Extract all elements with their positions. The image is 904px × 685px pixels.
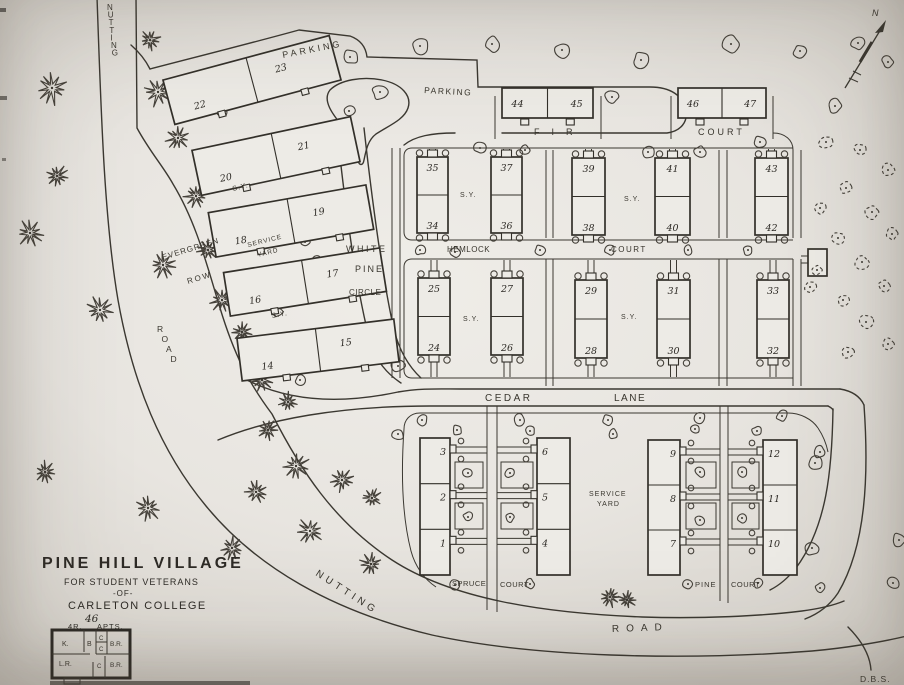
bush <box>749 458 755 464</box>
building-number: 6 <box>542 447 548 458</box>
bush <box>458 484 464 490</box>
conifer-icon <box>330 470 354 493</box>
bush <box>523 548 529 554</box>
room-bedroom: B.R. <box>110 662 123 669</box>
building-number: 33 <box>767 286 779 297</box>
sy-label: S.Y. <box>271 310 288 320</box>
bush <box>757 273 763 279</box>
building: 4342 <box>755 149 788 243</box>
building-number: 30 <box>667 346 679 357</box>
street-label-nutting-top: NUTTING <box>107 3 118 58</box>
street-label-nutting-bottom: NUTTING <box>313 568 380 617</box>
building-number: 18 <box>234 235 248 248</box>
bush <box>575 360 581 366</box>
building: 321 <box>420 438 487 575</box>
bush <box>418 271 424 277</box>
building-number: 12 <box>768 449 780 460</box>
room-bedroom: B.R. <box>110 641 123 648</box>
building-number: 16 <box>248 294 262 307</box>
utility-building <box>808 249 827 276</box>
building-number: 46 <box>686 99 699 110</box>
bush <box>657 360 663 366</box>
bush <box>572 151 578 157</box>
conifer-icon <box>601 588 621 608</box>
bush <box>418 357 424 363</box>
signature: D.B.S. <box>860 674 891 684</box>
bush <box>601 360 607 366</box>
bush <box>755 151 761 157</box>
svg-text:YARD: YARD <box>597 501 620 508</box>
svg-text:-OF-: -OF- <box>113 589 133 598</box>
building-number: 2 <box>439 493 446 504</box>
building-number: 10 <box>768 539 780 550</box>
bush <box>523 530 529 536</box>
building-number: 3 <box>440 447 446 458</box>
bush <box>749 440 755 446</box>
bush <box>682 151 688 157</box>
room-living: L.R. <box>59 661 72 668</box>
conifer-icon <box>142 31 161 51</box>
building-number: 7 <box>670 539 677 550</box>
building-number: 44 <box>510 99 523 110</box>
building: 987 <box>648 440 720 575</box>
building-number: 35 <box>426 163 438 174</box>
bush <box>688 503 694 509</box>
title-block: PINE HILL VILLAGE FOR STUDENT VETERANS -… <box>42 555 244 612</box>
sy-label: S.Y. <box>624 196 640 203</box>
parking-label-ne: PARKING <box>424 85 473 98</box>
building-number: 8 <box>670 494 676 505</box>
bush <box>490 150 496 156</box>
conifer-icon <box>278 391 297 410</box>
service-yard-label-south: SERVICE <box>589 491 627 498</box>
building-number: 9 <box>670 449 676 460</box>
building-number: 34 <box>426 221 438 232</box>
svg-text:CIRCLE: CIRCLE <box>349 288 381 297</box>
north-arrow: N <box>845 8 886 88</box>
tree-icon <box>838 296 849 306</box>
bush <box>749 530 755 536</box>
building-number: 26 <box>500 343 513 354</box>
bush <box>458 530 464 536</box>
building: 1415 <box>237 319 400 386</box>
bush <box>781 151 787 157</box>
room-closet: C <box>97 664 102 670</box>
building: 3736 <box>490 149 522 241</box>
college-name: CARLETON COLLEGE <box>68 600 207 612</box>
bush <box>523 438 529 444</box>
building-number: 15 <box>339 337 352 349</box>
conifer-icon <box>19 220 44 247</box>
svg-text:ROW: ROW <box>186 270 213 286</box>
bush <box>458 438 464 444</box>
bush <box>523 484 529 490</box>
bush <box>656 151 662 157</box>
building: 3938 <box>572 149 605 243</box>
room-kitchen: K. <box>62 641 69 648</box>
sy-label: S.Y. <box>460 192 476 199</box>
building-number: 47 <box>743 99 757 110</box>
bush <box>688 548 694 554</box>
building-number: 43 <box>764 164 777 175</box>
building-number: 1 <box>440 538 446 549</box>
building-number: 42 <box>764 223 777 234</box>
east-road-outer-edge <box>805 405 866 619</box>
bush <box>442 150 448 156</box>
conifer-icon <box>359 552 381 574</box>
building: 3534 <box>416 149 448 241</box>
room-bath: B <box>87 641 92 648</box>
map-title: PINE HILL VILLAGE <box>42 555 244 572</box>
svg-text:COURT: COURT <box>500 580 529 589</box>
building-number: 40 <box>665 223 678 234</box>
bush <box>458 456 464 462</box>
building-number: 19 <box>312 206 326 219</box>
bush <box>749 503 755 509</box>
sy-label: S.Y. <box>463 316 479 323</box>
building: 3332 <box>757 260 789 377</box>
building-number: 41 <box>665 164 678 175</box>
conifer-icon <box>165 126 189 148</box>
building-number: 32 <box>767 346 779 357</box>
building-number: 25 <box>427 284 440 295</box>
building: 121110 <box>728 440 797 575</box>
building-number: 27 <box>500 284 514 295</box>
bush <box>575 273 581 279</box>
svg-text:COURT: COURT <box>698 127 745 137</box>
building-number: 36 <box>500 221 512 232</box>
fir-court-label: FIR <box>534 127 585 137</box>
building: 2021 <box>192 117 361 201</box>
building: 3130 <box>657 260 690 377</box>
building-number: 45 <box>570 99 583 110</box>
bush <box>601 273 607 279</box>
bush <box>598 151 604 157</box>
bush <box>683 273 689 279</box>
building-number: 24 <box>427 343 440 354</box>
building-number: 29 <box>584 286 597 297</box>
room-closet: C <box>99 647 104 653</box>
pine-court-label: PINE <box>695 580 717 589</box>
bush <box>688 530 694 536</box>
bush <box>749 548 755 554</box>
bush <box>517 357 523 363</box>
site-plan: 2223202118191617141544454647353437363938… <box>0 0 904 685</box>
building-number: 14 <box>261 360 274 372</box>
tree-icon <box>555 44 570 58</box>
bush <box>688 440 694 446</box>
white-pine-circle-label: WHITE <box>346 244 388 254</box>
bush <box>491 271 497 277</box>
spruce-court-label: SPRUCE <box>452 579 486 588</box>
room-closet: C <box>99 636 104 642</box>
bush <box>444 271 450 277</box>
site-plan-photo: 2223202118191617141544454647353437363938… <box>0 0 904 685</box>
bush <box>688 458 694 464</box>
building-number: 28 <box>584 346 597 357</box>
building-number: 5 <box>542 493 548 504</box>
bush <box>783 360 789 366</box>
hemlock-court-label: HEMLOCK <box>447 245 490 254</box>
svg-text:COURT: COURT <box>731 580 760 589</box>
cedar-lane-south-edge <box>218 406 828 440</box>
building: 4445 <box>502 88 593 125</box>
svg-text:PINE: PINE <box>355 264 384 274</box>
building-number: 11 <box>768 494 780 505</box>
street-label-road-bottom: ROAD <box>612 622 669 635</box>
map-subtitle: FOR STUDENT VETERANS <box>64 577 199 587</box>
building: 2524 <box>418 260 450 377</box>
cedar-lane-north-edge <box>243 378 840 399</box>
sy-label: S.Y. <box>621 314 637 321</box>
building: 2928 <box>575 260 607 377</box>
building-number: 31 <box>667 286 679 297</box>
bush <box>416 150 422 156</box>
building: 4140 <box>655 149 690 243</box>
bush <box>491 357 497 363</box>
building-number: 38 <box>582 223 594 234</box>
bush <box>757 360 763 366</box>
bush <box>683 360 689 366</box>
building-number: 37 <box>500 163 513 174</box>
bush <box>517 271 523 277</box>
svg-text:LANE: LANE <box>614 393 646 404</box>
bush <box>458 548 464 554</box>
cedar-lane-label: CEDAR <box>485 393 533 404</box>
bush <box>444 357 450 363</box>
building: 2726 <box>491 260 523 377</box>
bush <box>783 273 789 279</box>
street-label-road-left: ROAD <box>157 324 177 364</box>
building-number: 4 <box>541 538 548 549</box>
svg-text:COURT: COURT <box>611 245 647 254</box>
building-number: 39 <box>582 164 594 175</box>
legend-floor-plan: 46 4R. APTS. K. B C C B.R. L.R. C B.R. <box>52 613 130 684</box>
bush <box>657 273 663 279</box>
bush <box>523 456 529 462</box>
building: 4647 <box>678 88 766 125</box>
north-label: N <box>872 8 879 18</box>
